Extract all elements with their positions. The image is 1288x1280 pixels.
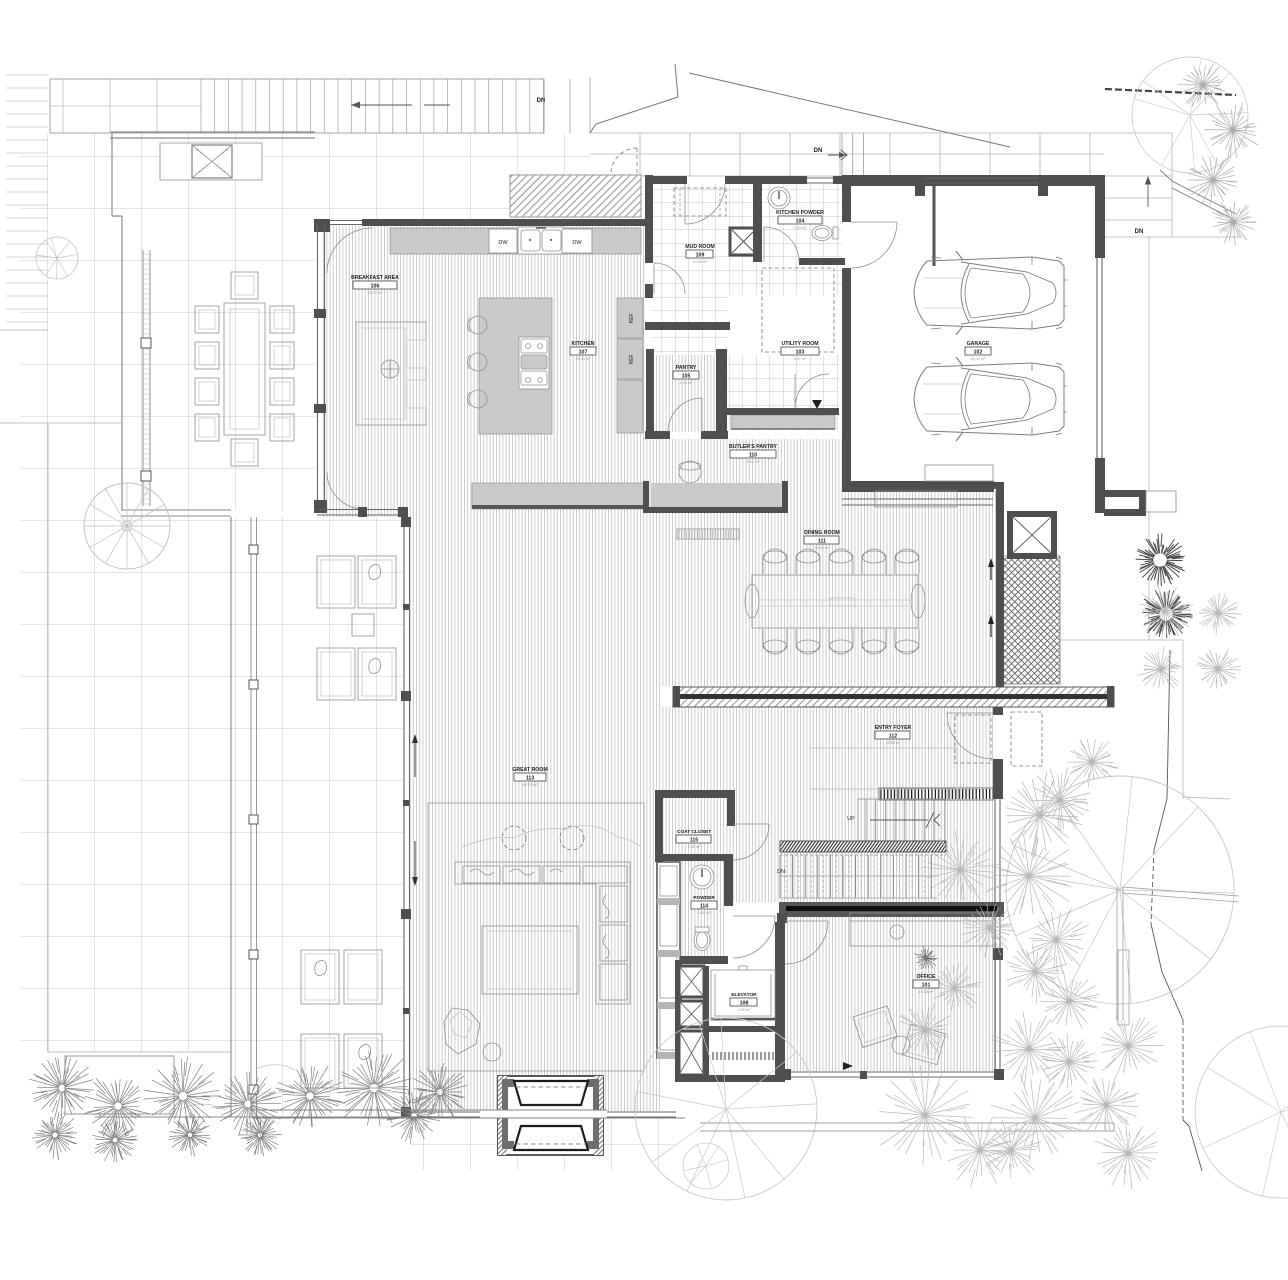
svg-text:GARAGE: GARAGE [967, 341, 990, 347]
svg-text:9.91 m²: 9.91 m² [747, 460, 761, 464]
svg-text:2.60 m²: 2.60 m² [738, 1008, 752, 1012]
svg-text:104: 104 [796, 218, 805, 224]
svg-text:REF.: REF. [629, 313, 635, 324]
svg-text:25.30 m²: 25.30 m² [576, 357, 592, 361]
svg-text:PANTRY: PANTRY [676, 365, 697, 371]
svg-text:MUD ROOM: MUD ROOM [685, 244, 714, 250]
svg-text:OFFICE: OFFICE [916, 974, 936, 980]
svg-text:ELEVATOR: ELEVATOR [731, 992, 757, 998]
svg-text:111: 111 [818, 538, 826, 544]
svg-text:UTILITY ROOM: UTILITY ROOM [781, 341, 818, 347]
svg-text:DW: DW [572, 240, 582, 246]
svg-text:109: 109 [696, 252, 705, 258]
svg-text:102: 102 [974, 349, 983, 355]
svg-text:KITCHEN: KITCHEN [571, 341, 594, 347]
svg-text:106: 106 [371, 283, 380, 289]
svg-text:108: 108 [740, 1000, 749, 1006]
svg-text:103: 103 [796, 349, 805, 355]
svg-text:DINING ROOM: DINING ROOM [804, 530, 840, 536]
svg-text:114: 114 [700, 903, 708, 909]
svg-text:KITCHEN POWDER: KITCHEN POWDER [776, 210, 824, 216]
svg-text:112: 112 [889, 733, 897, 739]
svg-text:2.41 m²: 2.41 m² [698, 911, 712, 915]
svg-text:101: 101 [922, 982, 931, 988]
svg-text:DN: DN [814, 148, 823, 154]
svg-text:BUTLER'S PANTRY: BUTLER'S PANTRY [729, 444, 777, 450]
svg-text:POWDER: POWDER [693, 895, 715, 901]
svg-text:COAT CLOSET: COAT CLOSET [677, 829, 711, 835]
svg-text:28.72 m²: 28.72 m² [368, 291, 384, 295]
svg-text:88.23 m²: 88.23 m² [523, 783, 539, 787]
svg-text:22.53 m²: 22.53 m² [886, 741, 902, 745]
svg-text:105: 105 [682, 373, 691, 379]
svg-text:115: 115 [690, 837, 698, 843]
svg-text:5.37 m²: 5.37 m² [794, 357, 808, 361]
svg-text:GREAT ROOM: GREAT ROOM [512, 767, 547, 773]
svg-text:ENTRY FOYER: ENTRY FOYER [875, 725, 912, 731]
svg-text:15.18 m²: 15.18 m² [919, 990, 935, 994]
svg-text:2.30 m²: 2.30 m² [688, 845, 702, 849]
svg-text:107: 107 [579, 349, 588, 355]
svg-text:DW: DW [498, 240, 508, 246]
svg-text:2.53 m²: 2.53 m² [794, 226, 808, 230]
svg-text:DN: DN [1135, 229, 1144, 235]
svg-text:110: 110 [749, 452, 757, 458]
svg-text:UP: UP [847, 816, 855, 822]
svg-text:34.09 m²: 34.09 m² [815, 546, 831, 550]
svg-text:DN: DN [777, 869, 785, 875]
svg-text:113: 113 [526, 775, 534, 781]
svg-text:4.33 m²: 4.33 m² [680, 381, 694, 385]
svg-text:BREAKFAST AREA: BREAKFAST AREA [351, 275, 399, 281]
svg-text:10.60 m²: 10.60 m² [693, 260, 709, 264]
svg-text:REF.: REF. [629, 354, 635, 365]
svg-text:55.42 m²: 55.42 m² [971, 357, 987, 361]
